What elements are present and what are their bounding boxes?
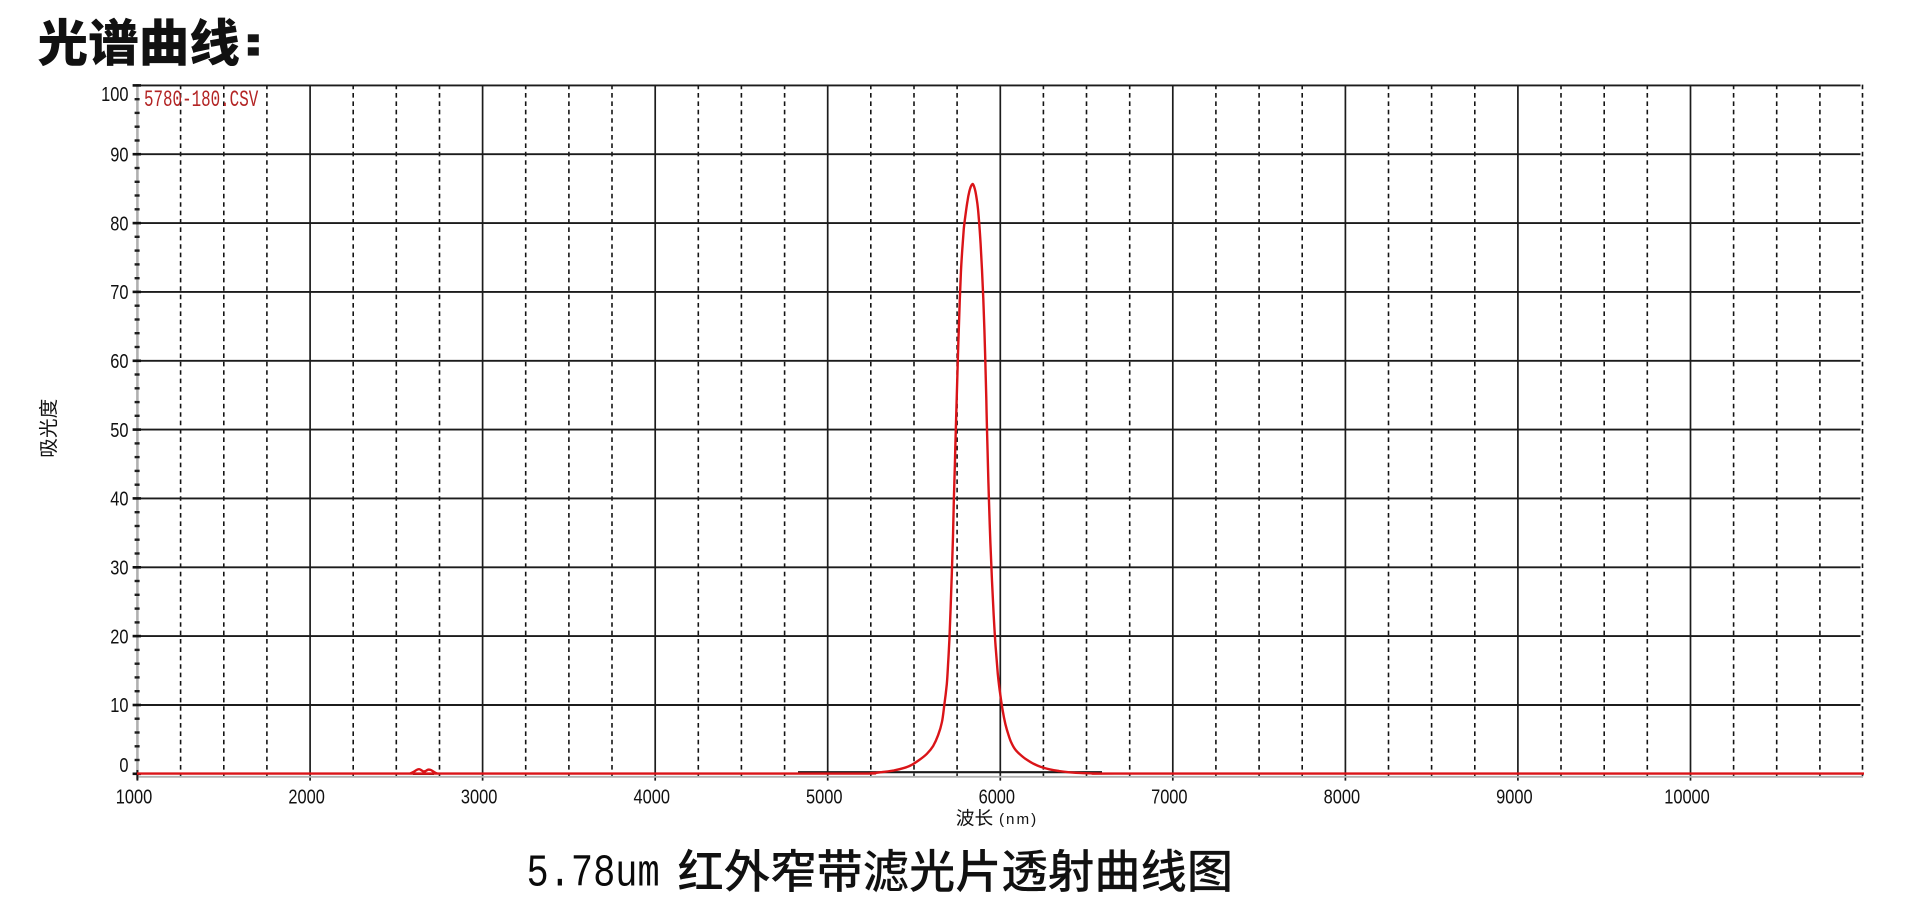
- svg-text:1000: 1000: [116, 785, 152, 808]
- svg-text:10: 10: [110, 694, 128, 717]
- svg-text:5.78um: 5.78um: [527, 849, 660, 899]
- svg-text:40: 40: [110, 487, 128, 510]
- svg-text:20: 20: [110, 625, 128, 648]
- svg-text:30: 30: [110, 556, 128, 579]
- svg-text:0: 0: [119, 753, 128, 776]
- svg-text:4000: 4000: [633, 785, 669, 808]
- svg-text:10000: 10000: [1664, 785, 1710, 808]
- svg-text:2000: 2000: [288, 785, 324, 808]
- svg-text:8000: 8000: [1324, 785, 1360, 808]
- svg-text:70: 70: [110, 281, 128, 304]
- svg-text:100: 100: [101, 82, 128, 105]
- svg-text:80: 80: [110, 212, 128, 235]
- svg-text:50: 50: [110, 418, 128, 441]
- svg-text:5780-180.CSV: 5780-180.CSV: [144, 88, 258, 114]
- svg-text:6000: 6000: [979, 785, 1015, 808]
- svg-text:5000: 5000: [806, 785, 842, 808]
- svg-text:3000: 3000: [461, 785, 497, 808]
- svg-text:90: 90: [110, 143, 128, 166]
- svg-text:9000: 9000: [1496, 785, 1532, 808]
- svg-text:60: 60: [110, 349, 128, 372]
- svg-text:(nm): (nm): [999, 811, 1038, 828]
- svg-text:7000: 7000: [1151, 785, 1187, 808]
